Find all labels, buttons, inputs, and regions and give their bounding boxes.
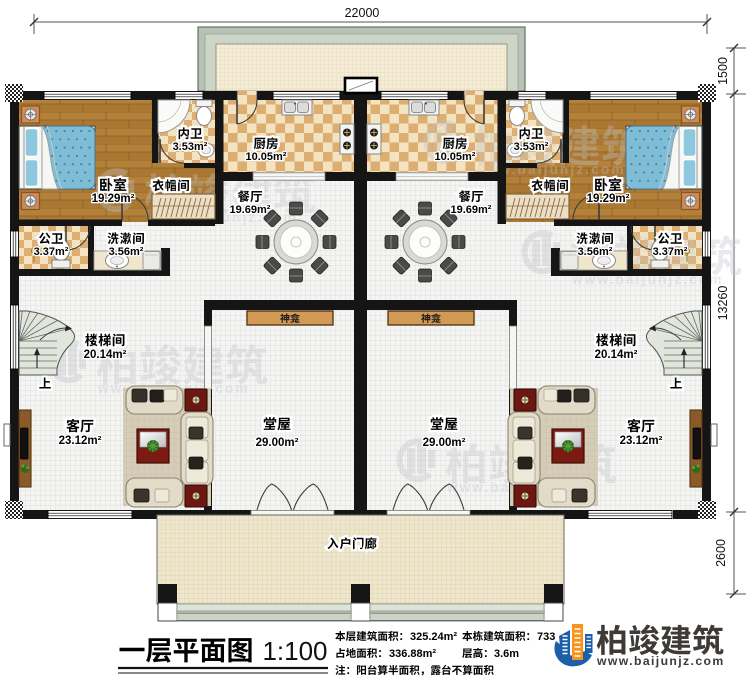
svg-text:3.53m²: 3.53m²: [173, 141, 208, 153]
svg-text:20.14m²: 20.14m²: [84, 349, 127, 361]
svg-text:3.6m: 3.6m: [494, 648, 519, 660]
svg-text:29.00m²: 29.00m²: [256, 437, 299, 449]
svg-text:13260: 13260: [716, 286, 730, 321]
svg-text:3.53m²: 3.53m²: [514, 141, 549, 153]
svg-text:3.56m²: 3.56m²: [578, 246, 613, 258]
svg-text:10.05m²: 10.05m²: [246, 151, 287, 163]
svg-text:19.29m²: 19.29m²: [92, 193, 135, 205]
svg-text:23.12m²: 23.12m²: [620, 435, 663, 447]
svg-text:www.baijunjz.com: www.baijunjz.com: [596, 654, 725, 668]
svg-text:10.05m²: 10.05m²: [435, 151, 476, 163]
svg-text:3.37m²: 3.37m²: [653, 246, 688, 258]
svg-text:2600: 2600: [714, 539, 728, 567]
svg-text:336.88m²: 336.88m²: [389, 648, 436, 660]
svg-text:19.29m²: 19.29m²: [587, 193, 630, 205]
svg-text:3.37m²: 3.37m²: [34, 246, 69, 258]
svg-text:19.69m²: 19.69m²: [230, 204, 271, 216]
svg-text:3.56m²: 3.56m²: [109, 246, 144, 258]
svg-text:325.24m²: 325.24m²: [410, 631, 457, 643]
svg-text:19.69m²: 19.69m²: [451, 204, 492, 216]
svg-text:20.14m²: 20.14m²: [595, 349, 638, 361]
svg-text:23.12m²: 23.12m²: [59, 435, 102, 447]
svg-text:1:100: 1:100: [262, 636, 327, 666]
svg-text:733: 733: [537, 631, 555, 643]
svg-text:22000: 22000: [345, 6, 380, 20]
svg-text:29.00m²: 29.00m²: [423, 437, 466, 449]
svg-text:1500: 1500: [716, 57, 730, 85]
